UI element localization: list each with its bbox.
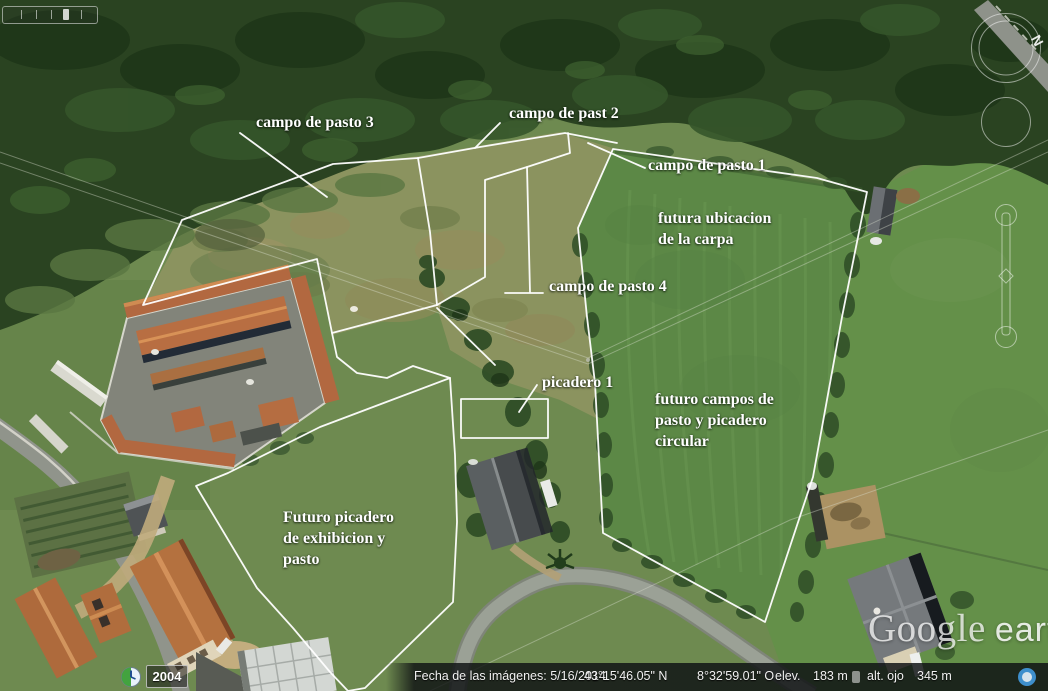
eye-altitude-value: 345 m xyxy=(917,669,952,683)
move-joystick[interactable] xyxy=(982,98,1031,147)
google-earth-watermark: Google earth xyxy=(868,606,1048,651)
compass-look-ring[interactable]: N xyxy=(972,14,1047,83)
terrain-indicator-icon xyxy=(852,671,860,683)
zoom-slider-knob[interactable] xyxy=(999,269,1013,283)
earth-view-canvas[interactable]: campo de pasto 3campo de past 2campo de … xyxy=(0,0,1048,691)
status-bar: Fecha de las imágenes: 5/16/2014 43°15'4… xyxy=(386,663,1048,691)
imagery-year-badge[interactable]: 2004 xyxy=(146,665,188,688)
elevation-value: 183 m xyxy=(813,669,848,683)
zoom-out-button[interactable] xyxy=(996,327,1017,348)
watermark-brand: Google xyxy=(868,606,986,651)
elevation-label: elev. xyxy=(775,669,800,683)
historical-imagery-clock-icon[interactable] xyxy=(120,666,142,688)
north-label: N xyxy=(1028,32,1047,48)
slider-tick xyxy=(36,10,37,19)
zoom-in-button[interactable] xyxy=(996,205,1017,226)
navigation-controls: N xyxy=(956,0,1048,360)
satellite-imagery xyxy=(0,0,1048,691)
imagery-year: 2004 xyxy=(153,669,182,684)
slider-tick xyxy=(81,10,82,19)
slider-tick xyxy=(21,10,22,19)
historical-imagery-slider[interactable] xyxy=(2,6,98,24)
zoom-slider[interactable] xyxy=(996,205,1017,348)
slider-handle[interactable] xyxy=(63,9,69,20)
streaming-indicator-icon xyxy=(1018,668,1036,686)
watermark-product: earth xyxy=(995,611,1048,650)
latitude: 43°15'46.05" N xyxy=(584,669,667,683)
imagery-date: Fecha de las imágenes: 5/16/2014 xyxy=(414,669,606,683)
eye-altitude-label: alt. ojo xyxy=(867,669,904,683)
slider-tick xyxy=(51,10,52,19)
longitude: 8°32'59.01" O xyxy=(697,669,774,683)
